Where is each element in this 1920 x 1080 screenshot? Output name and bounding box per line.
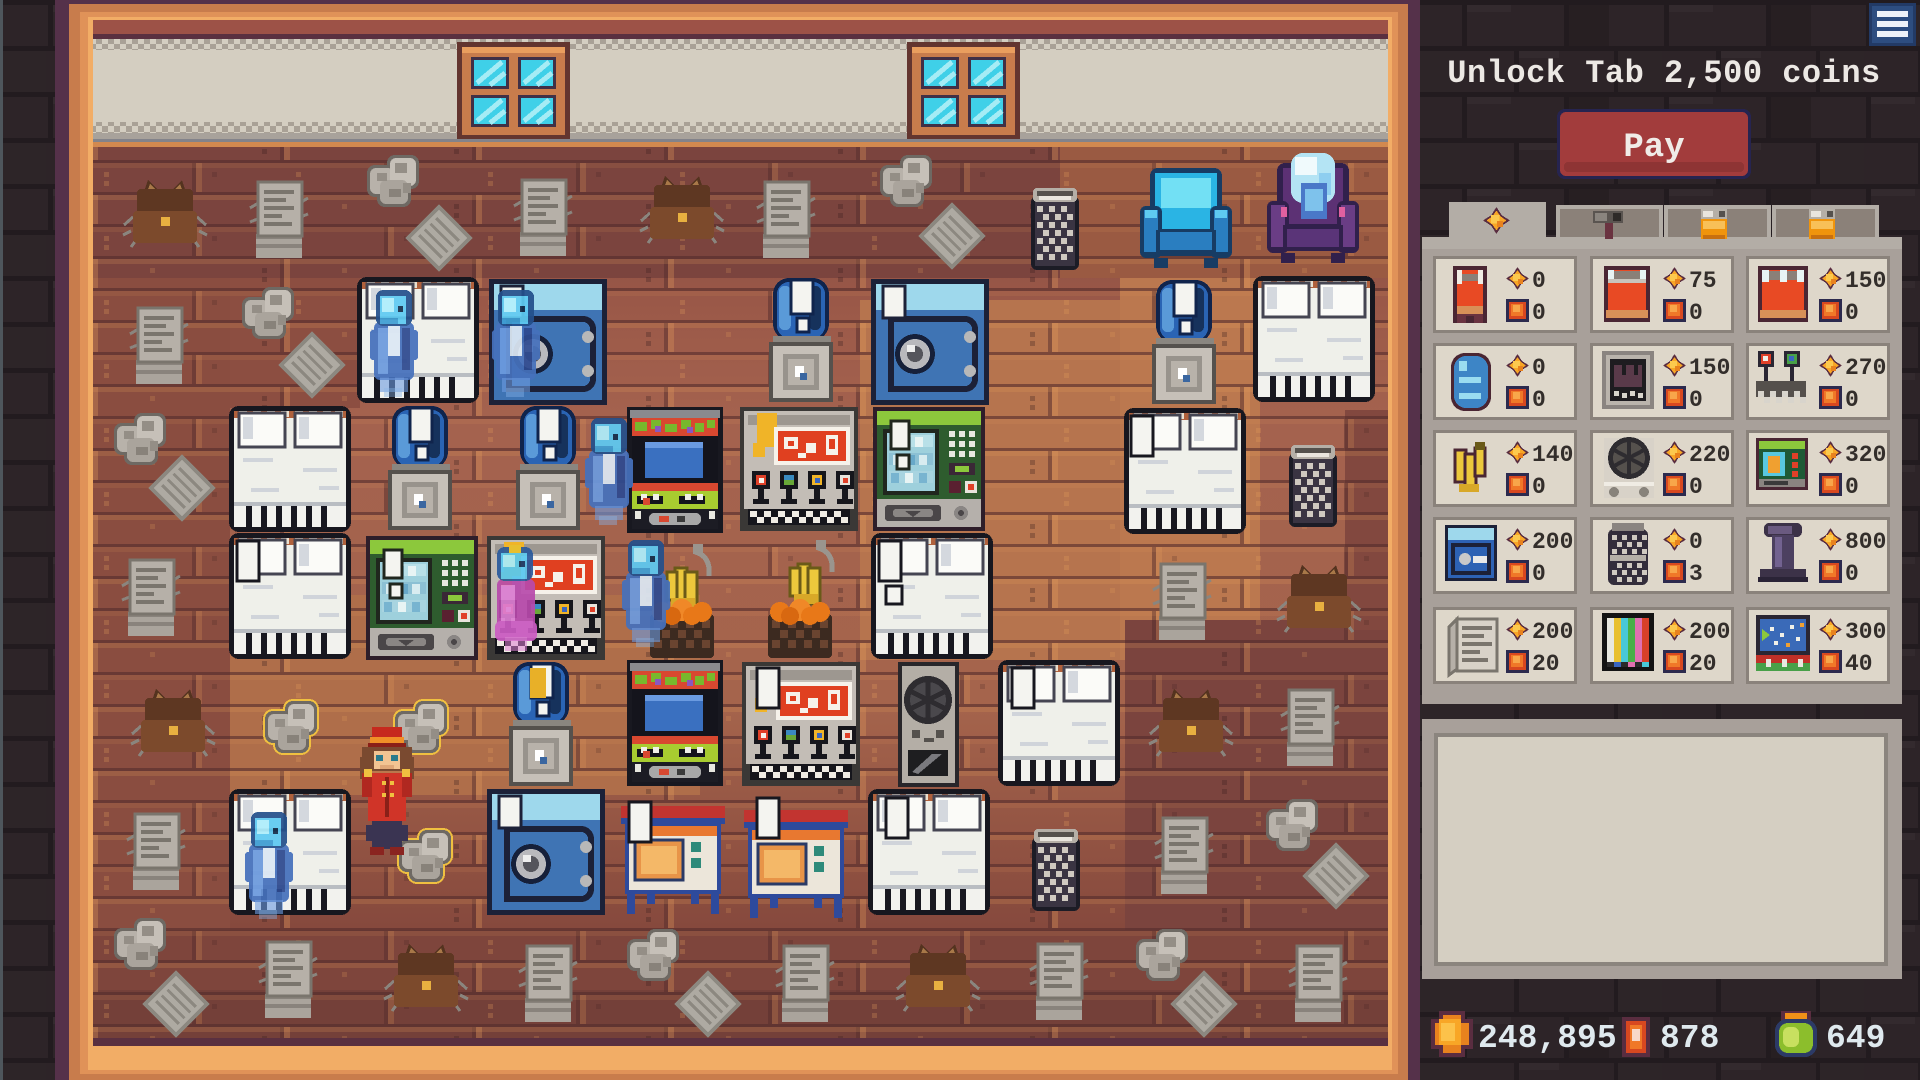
svg-text:150: 150 <box>1845 268 1886 294</box>
svg-text:649: 649 <box>1826 1020 1885 1057</box>
svg-text:248,895: 248,895 <box>1478 1020 1617 1057</box>
svg-text:75: 75 <box>1689 268 1717 294</box>
svg-text:270: 270 <box>1845 355 1886 381</box>
svg-text:0: 0 <box>1532 268 1546 294</box>
svg-text:Pay: Pay <box>1623 129 1684 167</box>
svg-text:0: 0 <box>1689 529 1703 555</box>
svg-text:0: 0 <box>1532 387 1546 413</box>
svg-text:150: 150 <box>1689 355 1730 381</box>
svg-text:0: 0 <box>1845 474 1859 500</box>
svg-text:20: 20 <box>1689 651 1717 677</box>
svg-text:3: 3 <box>1689 561 1703 587</box>
svg-text:40: 40 <box>1845 651 1873 677</box>
svg-text:0: 0 <box>1532 300 1546 326</box>
svg-text:0: 0 <box>1532 474 1546 500</box>
svg-text:0: 0 <box>1689 387 1703 413</box>
svg-text:0: 0 <box>1845 300 1859 326</box>
svg-text:0: 0 <box>1689 300 1703 326</box>
svg-text:878: 878 <box>1660 1020 1719 1057</box>
svg-text:200: 200 <box>1689 619 1730 645</box>
svg-text:800: 800 <box>1845 529 1886 555</box>
svg-text:200: 200 <box>1532 529 1573 555</box>
svg-text:0: 0 <box>1845 387 1859 413</box>
svg-text:0: 0 <box>1532 561 1546 587</box>
svg-text:0: 0 <box>1845 561 1859 587</box>
svg-text:20: 20 <box>1532 651 1560 677</box>
svg-text:320: 320 <box>1845 442 1886 468</box>
svg-text:140: 140 <box>1532 442 1573 468</box>
svg-text:220: 220 <box>1689 442 1730 468</box>
svg-text:200: 200 <box>1532 619 1573 645</box>
svg-text:Unlock Tab 2,500 coins: Unlock Tab 2,500 coins <box>1447 55 1880 92</box>
svg-text:0: 0 <box>1532 355 1546 381</box>
svg-text:0: 0 <box>1689 474 1703 500</box>
svg-text:300: 300 <box>1845 619 1886 645</box>
